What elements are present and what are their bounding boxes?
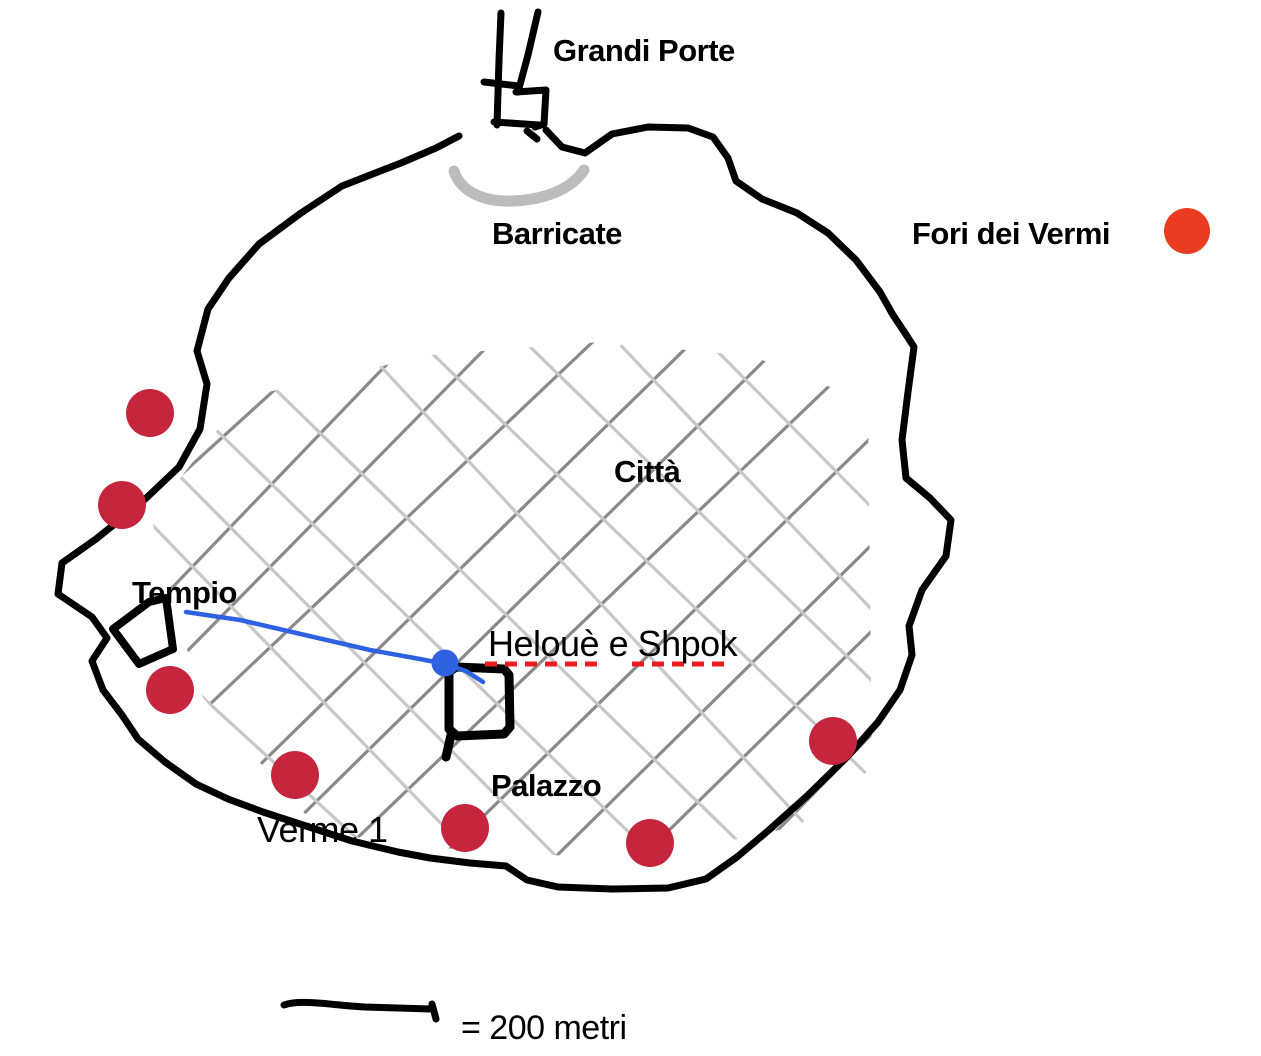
gate-road-left [497, 13, 501, 125]
map-canvas: Fori dei Vermi = 200 metri Grandi Porte … [0, 0, 1261, 1056]
label-verme-1: Verme 1 [257, 809, 388, 850]
street-line [819, 818, 867, 875]
label-grandi-porte: Grandi Porte [553, 33, 735, 68]
street-line [148, 352, 317, 505]
worm-hole-dot [98, 481, 146, 529]
legend-label: Fori dei Vermi [912, 216, 1110, 251]
main-gate-group [484, 12, 546, 139]
gate-road-stub [527, 131, 537, 139]
label-heloue-e-shpok: Helouè e Shpok [488, 623, 739, 664]
barricade-arc [454, 170, 584, 201]
street-line [151, 809, 199, 861]
city-map-drawing: Fori dei Vermi = 200 metri Grandi Porte … [0, 0, 1261, 1056]
gate-crossbar [484, 82, 519, 86]
scale-bar-tick [432, 1004, 436, 1019]
route-endpoint-dot [432, 650, 459, 677]
label-barricate: Barricate [492, 216, 622, 251]
worm-hole-dot [146, 666, 194, 714]
worm-hole-dot [809, 717, 857, 765]
street-line [132, 349, 485, 707]
street-line [162, 350, 685, 861]
label-citta: Città [614, 454, 682, 489]
gate-threshold [494, 122, 539, 125]
worm-hole-dot [271, 751, 319, 799]
street-line [799, 335, 893, 399]
worm-hole-dot [126, 389, 174, 437]
label-palazzo: Palazzo [491, 768, 601, 803]
scale-label: = 200 metri [461, 1009, 627, 1047]
worm-hole-dot [626, 819, 674, 867]
worm-hole-dot [441, 804, 489, 852]
palace-tail [446, 735, 451, 757]
street-line [705, 338, 878, 513]
label-tempio: Tempio [132, 575, 237, 610]
scale-bar [284, 1002, 431, 1009]
gate-road-right [518, 12, 538, 92]
legend-dot [1164, 208, 1210, 254]
